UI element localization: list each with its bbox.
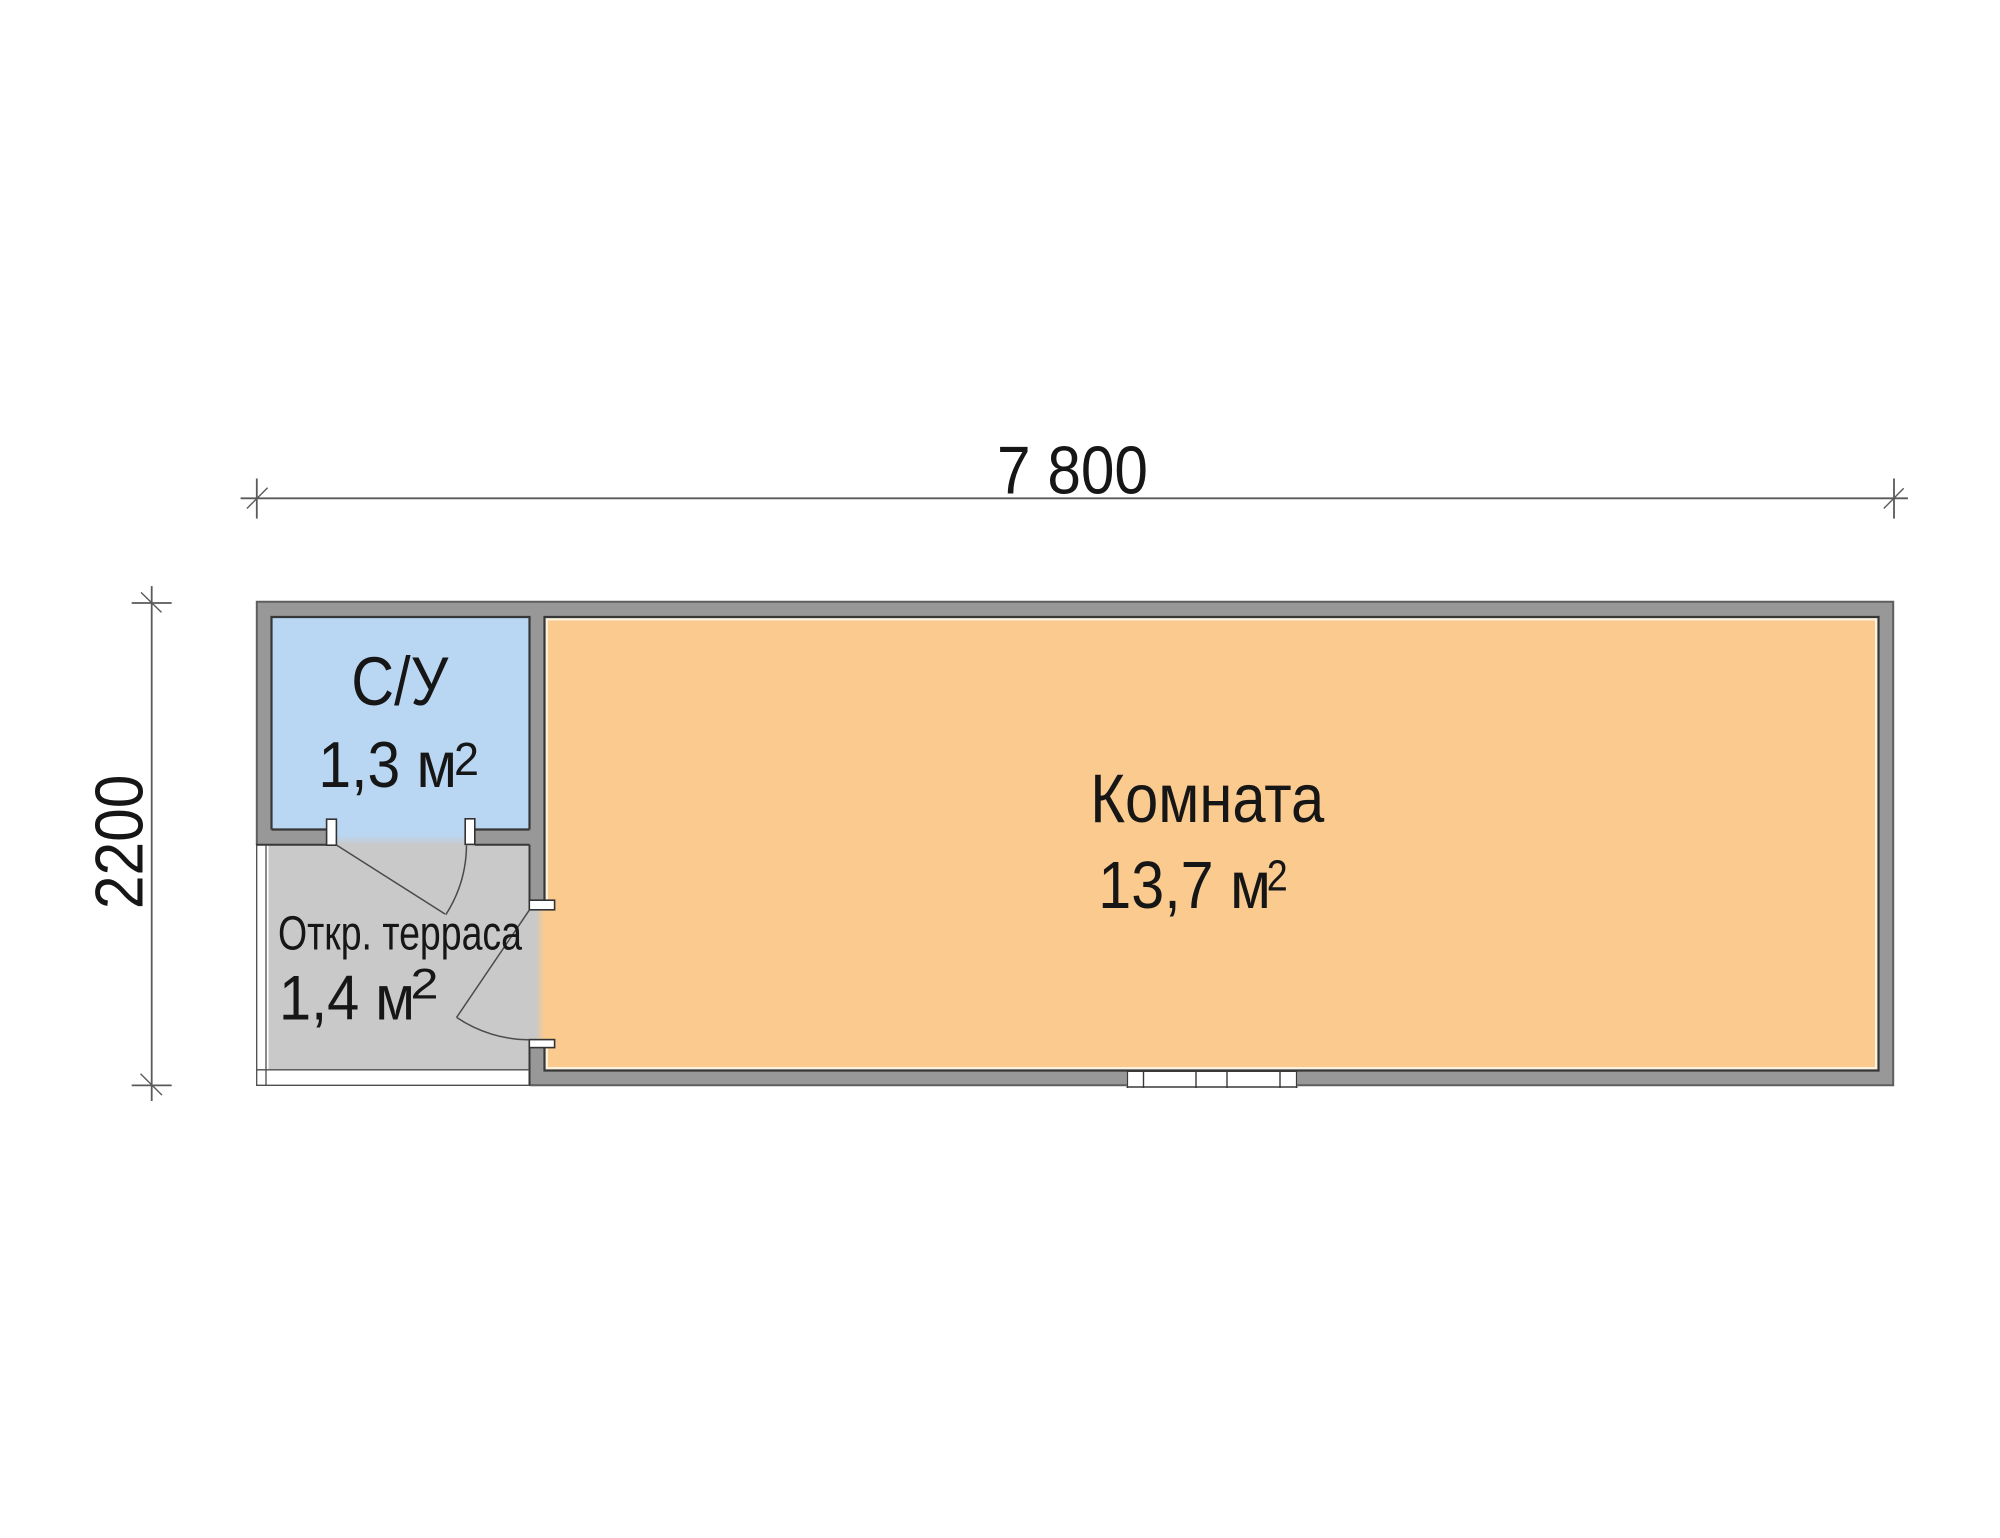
- svg-text:С/У: С/У: [351, 643, 449, 720]
- svg-text:1,4 м: 1,4 м: [279, 963, 415, 1033]
- svg-text:Комната: Комната: [1090, 760, 1325, 837]
- svg-text:1,3 м: 1,3 м: [318, 728, 457, 801]
- svg-text:2: 2: [454, 733, 479, 785]
- svg-text:2: 2: [1267, 852, 1288, 901]
- svg-text:2200: 2200: [82, 775, 158, 910]
- svg-text:2: 2: [411, 961, 439, 1009]
- svg-text:13,7 м: 13,7 м: [1098, 849, 1271, 923]
- svg-text:7 800: 7 800: [997, 434, 1148, 509]
- svg-text:Откр. терраса: Откр. терраса: [278, 908, 522, 961]
